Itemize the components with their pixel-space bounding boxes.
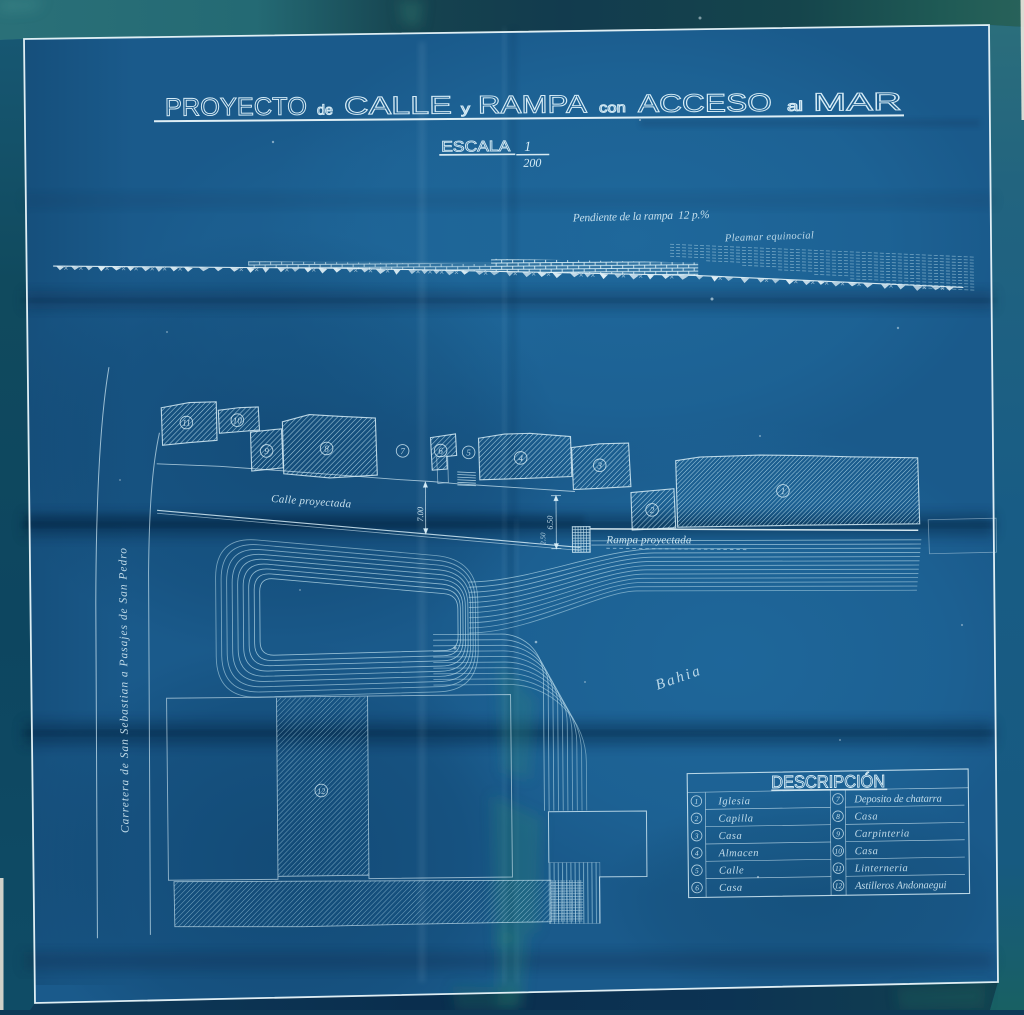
svg-text:ESCALA: ESCALA (441, 138, 510, 156)
svg-text:Casa: Casa (855, 846, 879, 857)
svg-text:1: 1 (781, 486, 786, 496)
svg-text:6.50: 6.50 (546, 516, 555, 530)
svg-text:Capilla: Capilla (718, 813, 753, 824)
svg-text:12: 12 (317, 787, 325, 796)
svg-text:Casa: Casa (719, 883, 743, 894)
svg-text:CALLE: CALLE (344, 91, 452, 120)
svg-text:200: 200 (523, 156, 541, 170)
svg-text:10: 10 (233, 415, 243, 425)
svg-text:de: de (317, 101, 333, 117)
svg-text:3: 3 (596, 460, 602, 470)
svg-text:3: 3 (694, 831, 699, 840)
svg-text:Carretera de San Sebastian a P: Carretera de San Sebastian a Pasajes de … (117, 548, 131, 833)
svg-text:y: y (461, 100, 470, 116)
svg-text:Iglesia: Iglesia (717, 796, 750, 807)
svg-text:5: 5 (466, 448, 471, 458)
svg-text:MAR: MAR (813, 88, 902, 117)
svg-text:Calle: Calle (719, 865, 744, 876)
svg-text:12: 12 (835, 881, 843, 890)
svg-text:10: 10 (834, 847, 842, 856)
svg-text:RAMPA: RAMPA (478, 90, 588, 119)
svg-text:11: 11 (182, 418, 190, 428)
svg-text:8: 8 (836, 812, 840, 821)
svg-text:2.50: 2.50 (539, 532, 547, 545)
svg-text:6: 6 (438, 446, 443, 456)
svg-text:con: con (599, 99, 626, 115)
svg-text:Deposito de chatarra: Deposito de chatarra (853, 794, 942, 806)
svg-text:DESCRIPCIÓN: DESCRIPCIÓN (771, 770, 885, 792)
svg-text:7: 7 (836, 795, 840, 804)
svg-text:9: 9 (836, 829, 840, 838)
svg-text:11: 11 (835, 864, 842, 873)
svg-text:Carpinteria: Carpinteria (855, 828, 910, 839)
svg-text:9: 9 (264, 446, 269, 456)
svg-text:al: al (787, 98, 803, 114)
svg-text:7.00: 7.00 (415, 506, 425, 522)
svg-text:1: 1 (524, 140, 531, 155)
svg-text:Casa: Casa (854, 811, 878, 822)
svg-text:Casa: Casa (719, 831, 743, 842)
svg-text:2: 2 (650, 505, 655, 515)
svg-text:8: 8 (324, 444, 329, 454)
svg-text:7: 7 (400, 446, 405, 456)
svg-text:4: 4 (518, 453, 523, 463)
svg-text:Astilleros Andonaegui: Astilleros Andonaegui (854, 880, 947, 892)
svg-text:4: 4 (695, 849, 699, 858)
svg-text:2: 2 (695, 814, 699, 823)
svg-text:Linterneria: Linterneria (854, 863, 908, 874)
svg-text:1: 1 (694, 797, 698, 806)
svg-text:6: 6 (695, 883, 699, 892)
svg-text:ACCESO: ACCESO (638, 89, 772, 118)
svg-text:PROYECTO: PROYECTO (165, 93, 307, 122)
svg-text:Almacen: Almacen (718, 848, 759, 859)
svg-text:5: 5 (695, 866, 699, 875)
